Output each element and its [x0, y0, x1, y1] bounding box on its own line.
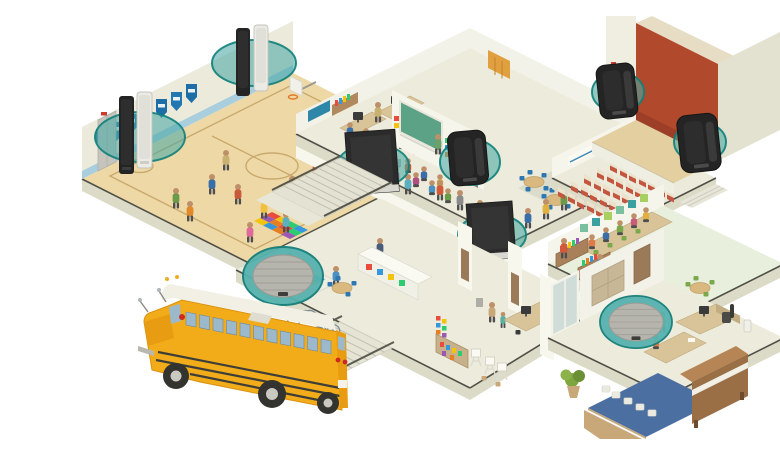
surface-speaker-stage-left: [595, 62, 638, 120]
bus-plate: [338, 380, 347, 388]
scene-canvas: [40, 16, 780, 439]
column-speaker-white-left: [137, 92, 152, 168]
auditorium-right-wall: [718, 19, 780, 161]
column-speaker-white-back: [254, 25, 268, 91]
bin: [476, 298, 483, 307]
ceiling-speaker-lobby: [243, 247, 323, 305]
school-cutaway-illustration: Isometric cutaway illustration of a scho…: [40, 16, 780, 439]
potted-plant: [561, 370, 586, 399]
bus-windshield: [169, 304, 181, 324]
water-cooler: [744, 320, 751, 332]
surface-speaker-classroom: [447, 129, 490, 186]
ceiling-speaker-office: [600, 296, 672, 348]
door: [461, 248, 469, 282]
column-speaker-black-back: [236, 28, 250, 96]
exit-sign: [101, 112, 107, 116]
column-speaker-black-left: [119, 96, 134, 174]
door: [511, 272, 519, 306]
bus-front-light: [179, 314, 185, 320]
surface-speaker-stage-right: [676, 112, 722, 173]
